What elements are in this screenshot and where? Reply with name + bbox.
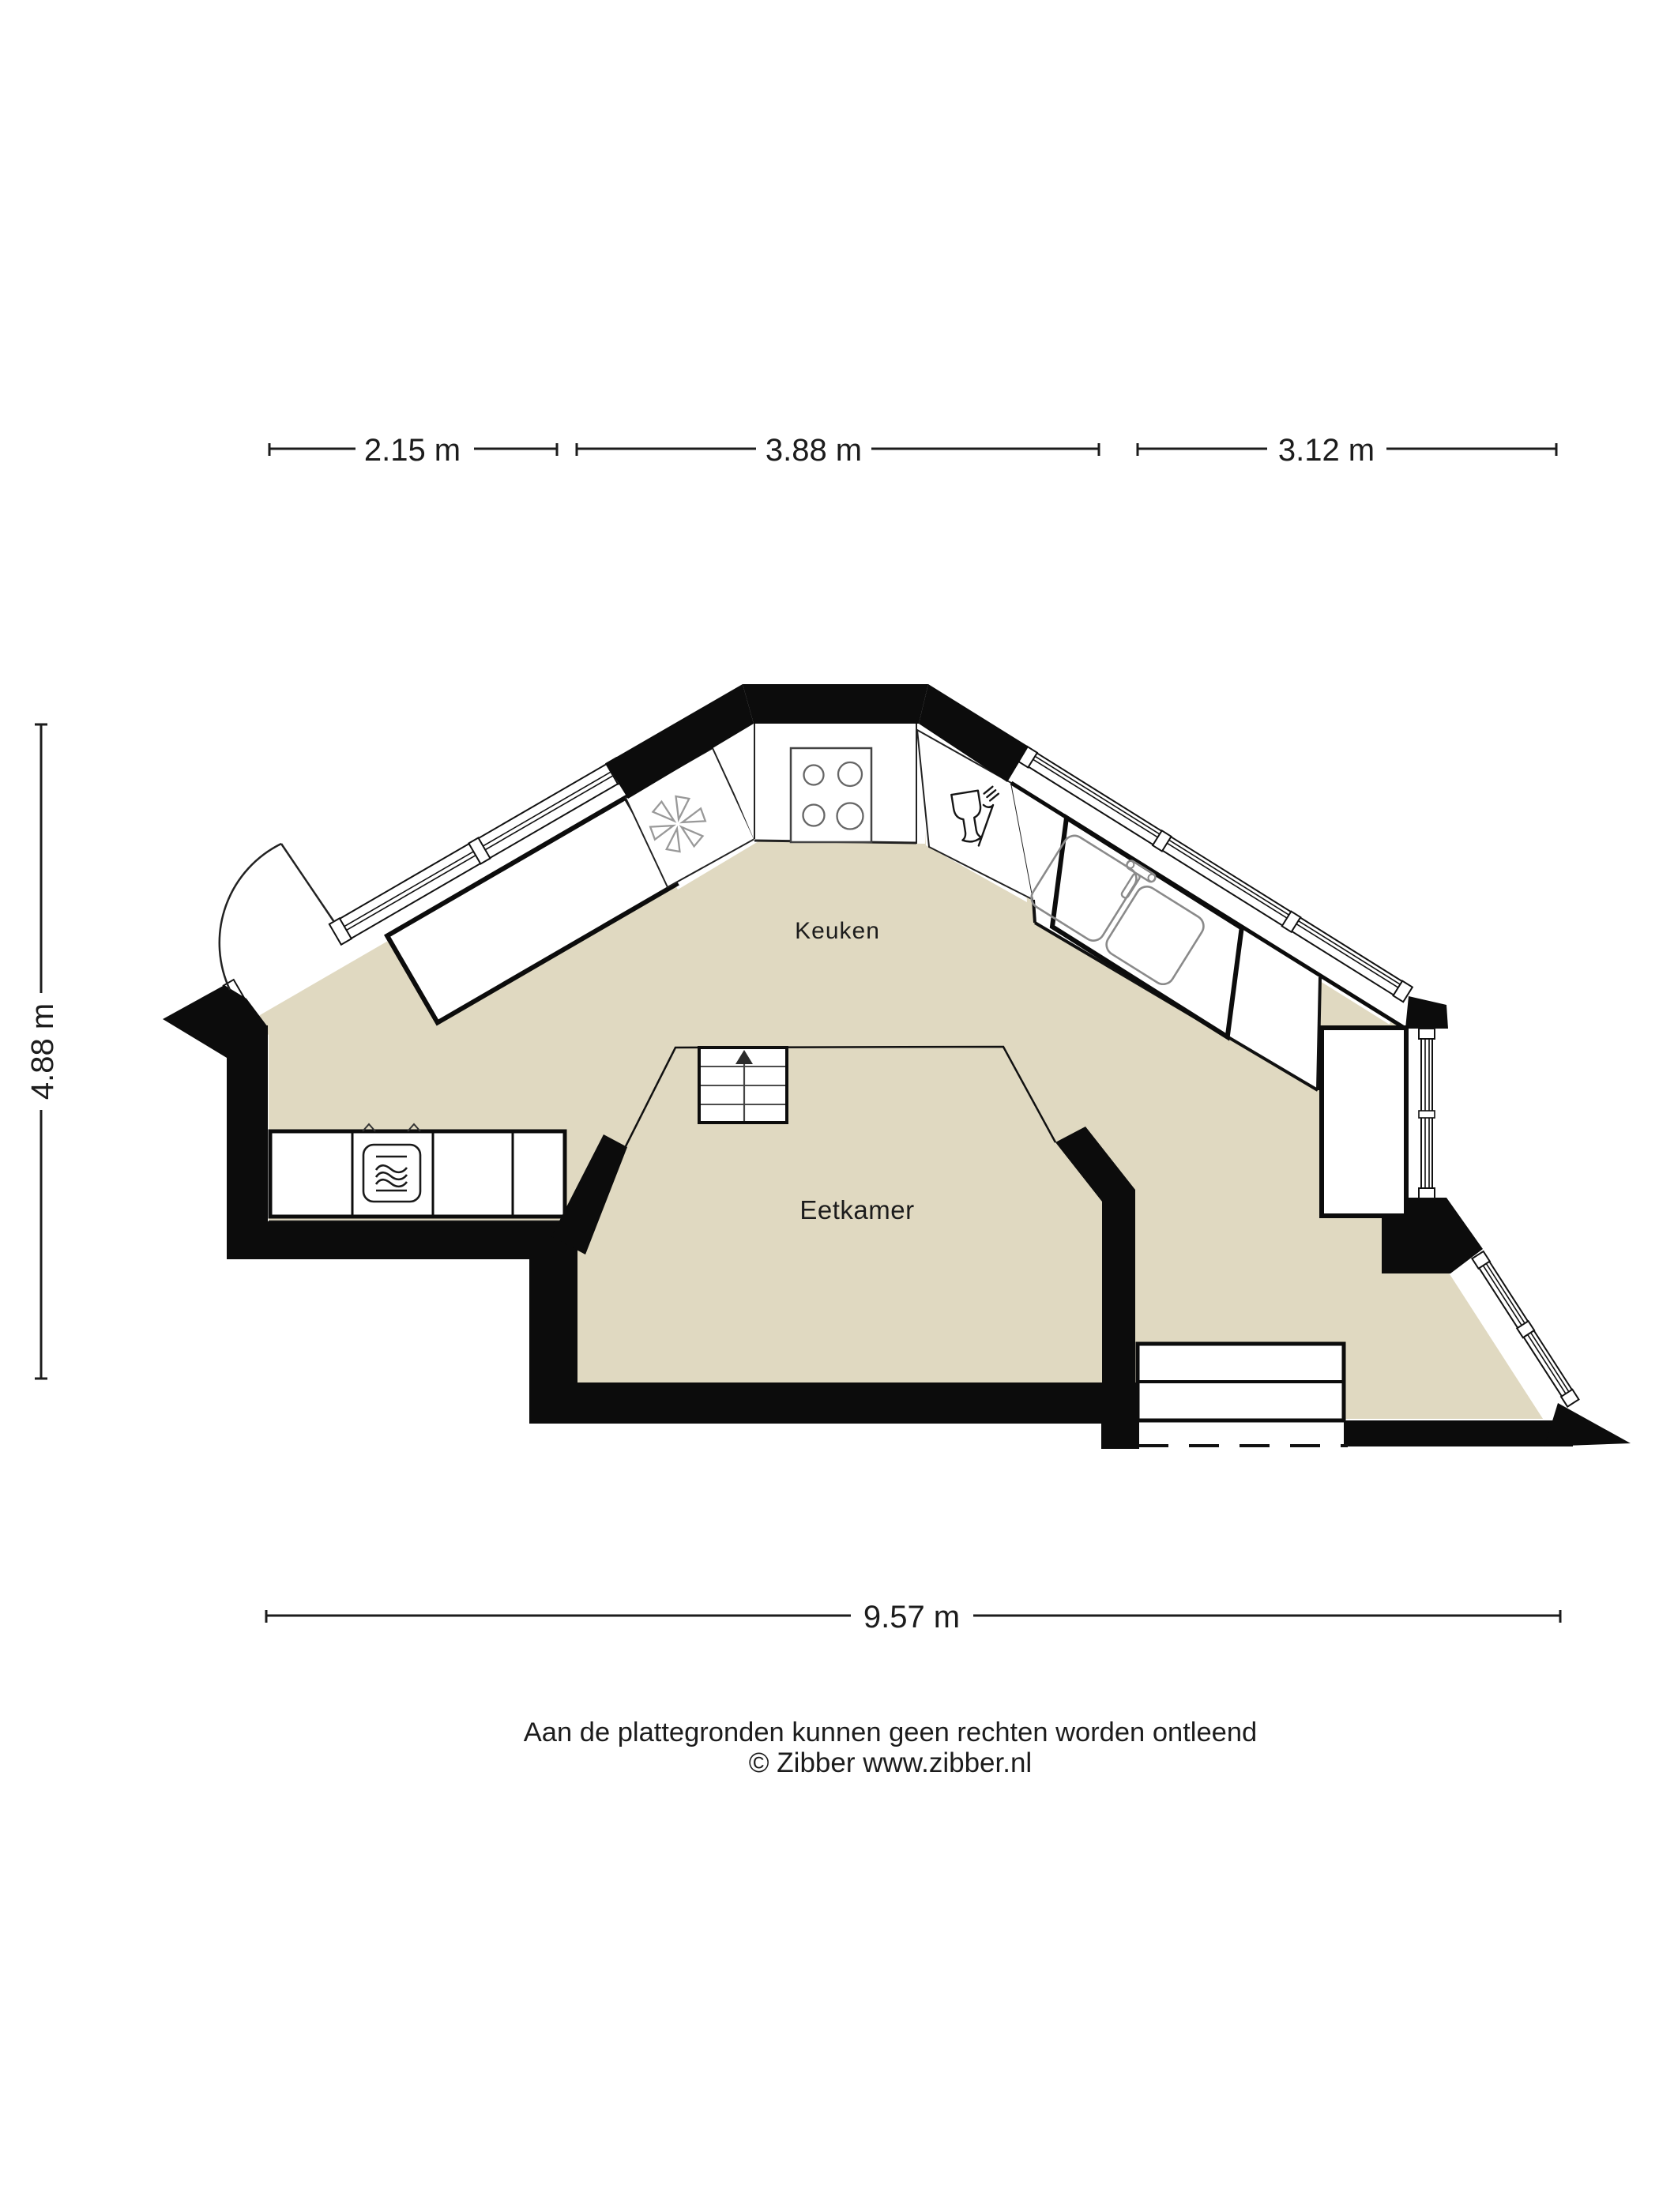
svg-text:2.15 m: 2.15 m	[364, 433, 461, 468]
svg-text:4.88 m: 4.88 m	[25, 1003, 60, 1100]
svg-text:Eetkamer: Eetkamer	[799, 1195, 914, 1224]
svg-text:Aan de plattegronden kunnen ge: Aan de plattegronden kunnen geen rechten…	[524, 1717, 1257, 1747]
svg-text:3.12 m: 3.12 m	[1278, 433, 1375, 468]
svg-text:3.88 m: 3.88 m	[766, 433, 862, 468]
svg-text:Keuken: Keuken	[795, 918, 880, 944]
svg-text:9.57 m: 9.57 m	[863, 1600, 960, 1635]
svg-text:© Zibber www.zibber.nl: © Zibber www.zibber.nl	[749, 1747, 1032, 1778]
